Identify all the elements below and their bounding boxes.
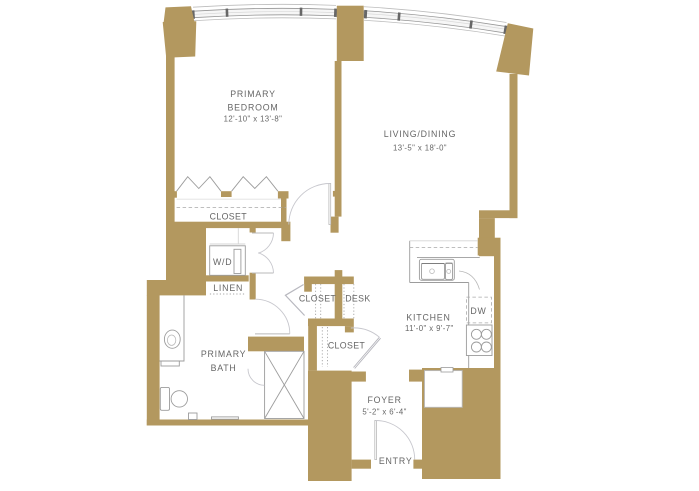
svg-text:PRIMARY: PRIMARY: [201, 349, 247, 359]
svg-text:DESK: DESK: [345, 294, 370, 304]
svg-text:11'-0" x 9'-7": 11'-0" x 9'-7": [405, 324, 454, 333]
svg-text:BATH: BATH: [211, 363, 237, 373]
svg-text:5'-2" x 6'-4": 5'-2" x 6'-4": [362, 408, 406, 417]
svg-text:FOYER: FOYER: [367, 395, 401, 405]
svg-text:13'-5" x 18'-0": 13'-5" x 18'-0": [393, 144, 447, 153]
svg-text:12'-10" x 13'-8": 12'-10" x 13'-8": [224, 115, 283, 124]
svg-text:W/D: W/D: [213, 257, 233, 267]
svg-text:CLOSET: CLOSET: [210, 211, 248, 221]
svg-text:LINEN: LINEN: [213, 283, 243, 293]
svg-text:CLOSET: CLOSET: [328, 341, 366, 351]
svg-text:LIVING/DINING: LIVING/DINING: [384, 129, 456, 139]
svg-text:BEDROOM: BEDROOM: [227, 102, 278, 112]
svg-text:DW: DW: [470, 306, 486, 316]
svg-text:ENTRY: ENTRY: [379, 456, 413, 466]
svg-text:KITCHEN: KITCHEN: [406, 313, 450, 323]
svg-text:CLOSET: CLOSET: [299, 294, 337, 304]
svg-text:PRIMARY: PRIMARY: [230, 89, 276, 99]
